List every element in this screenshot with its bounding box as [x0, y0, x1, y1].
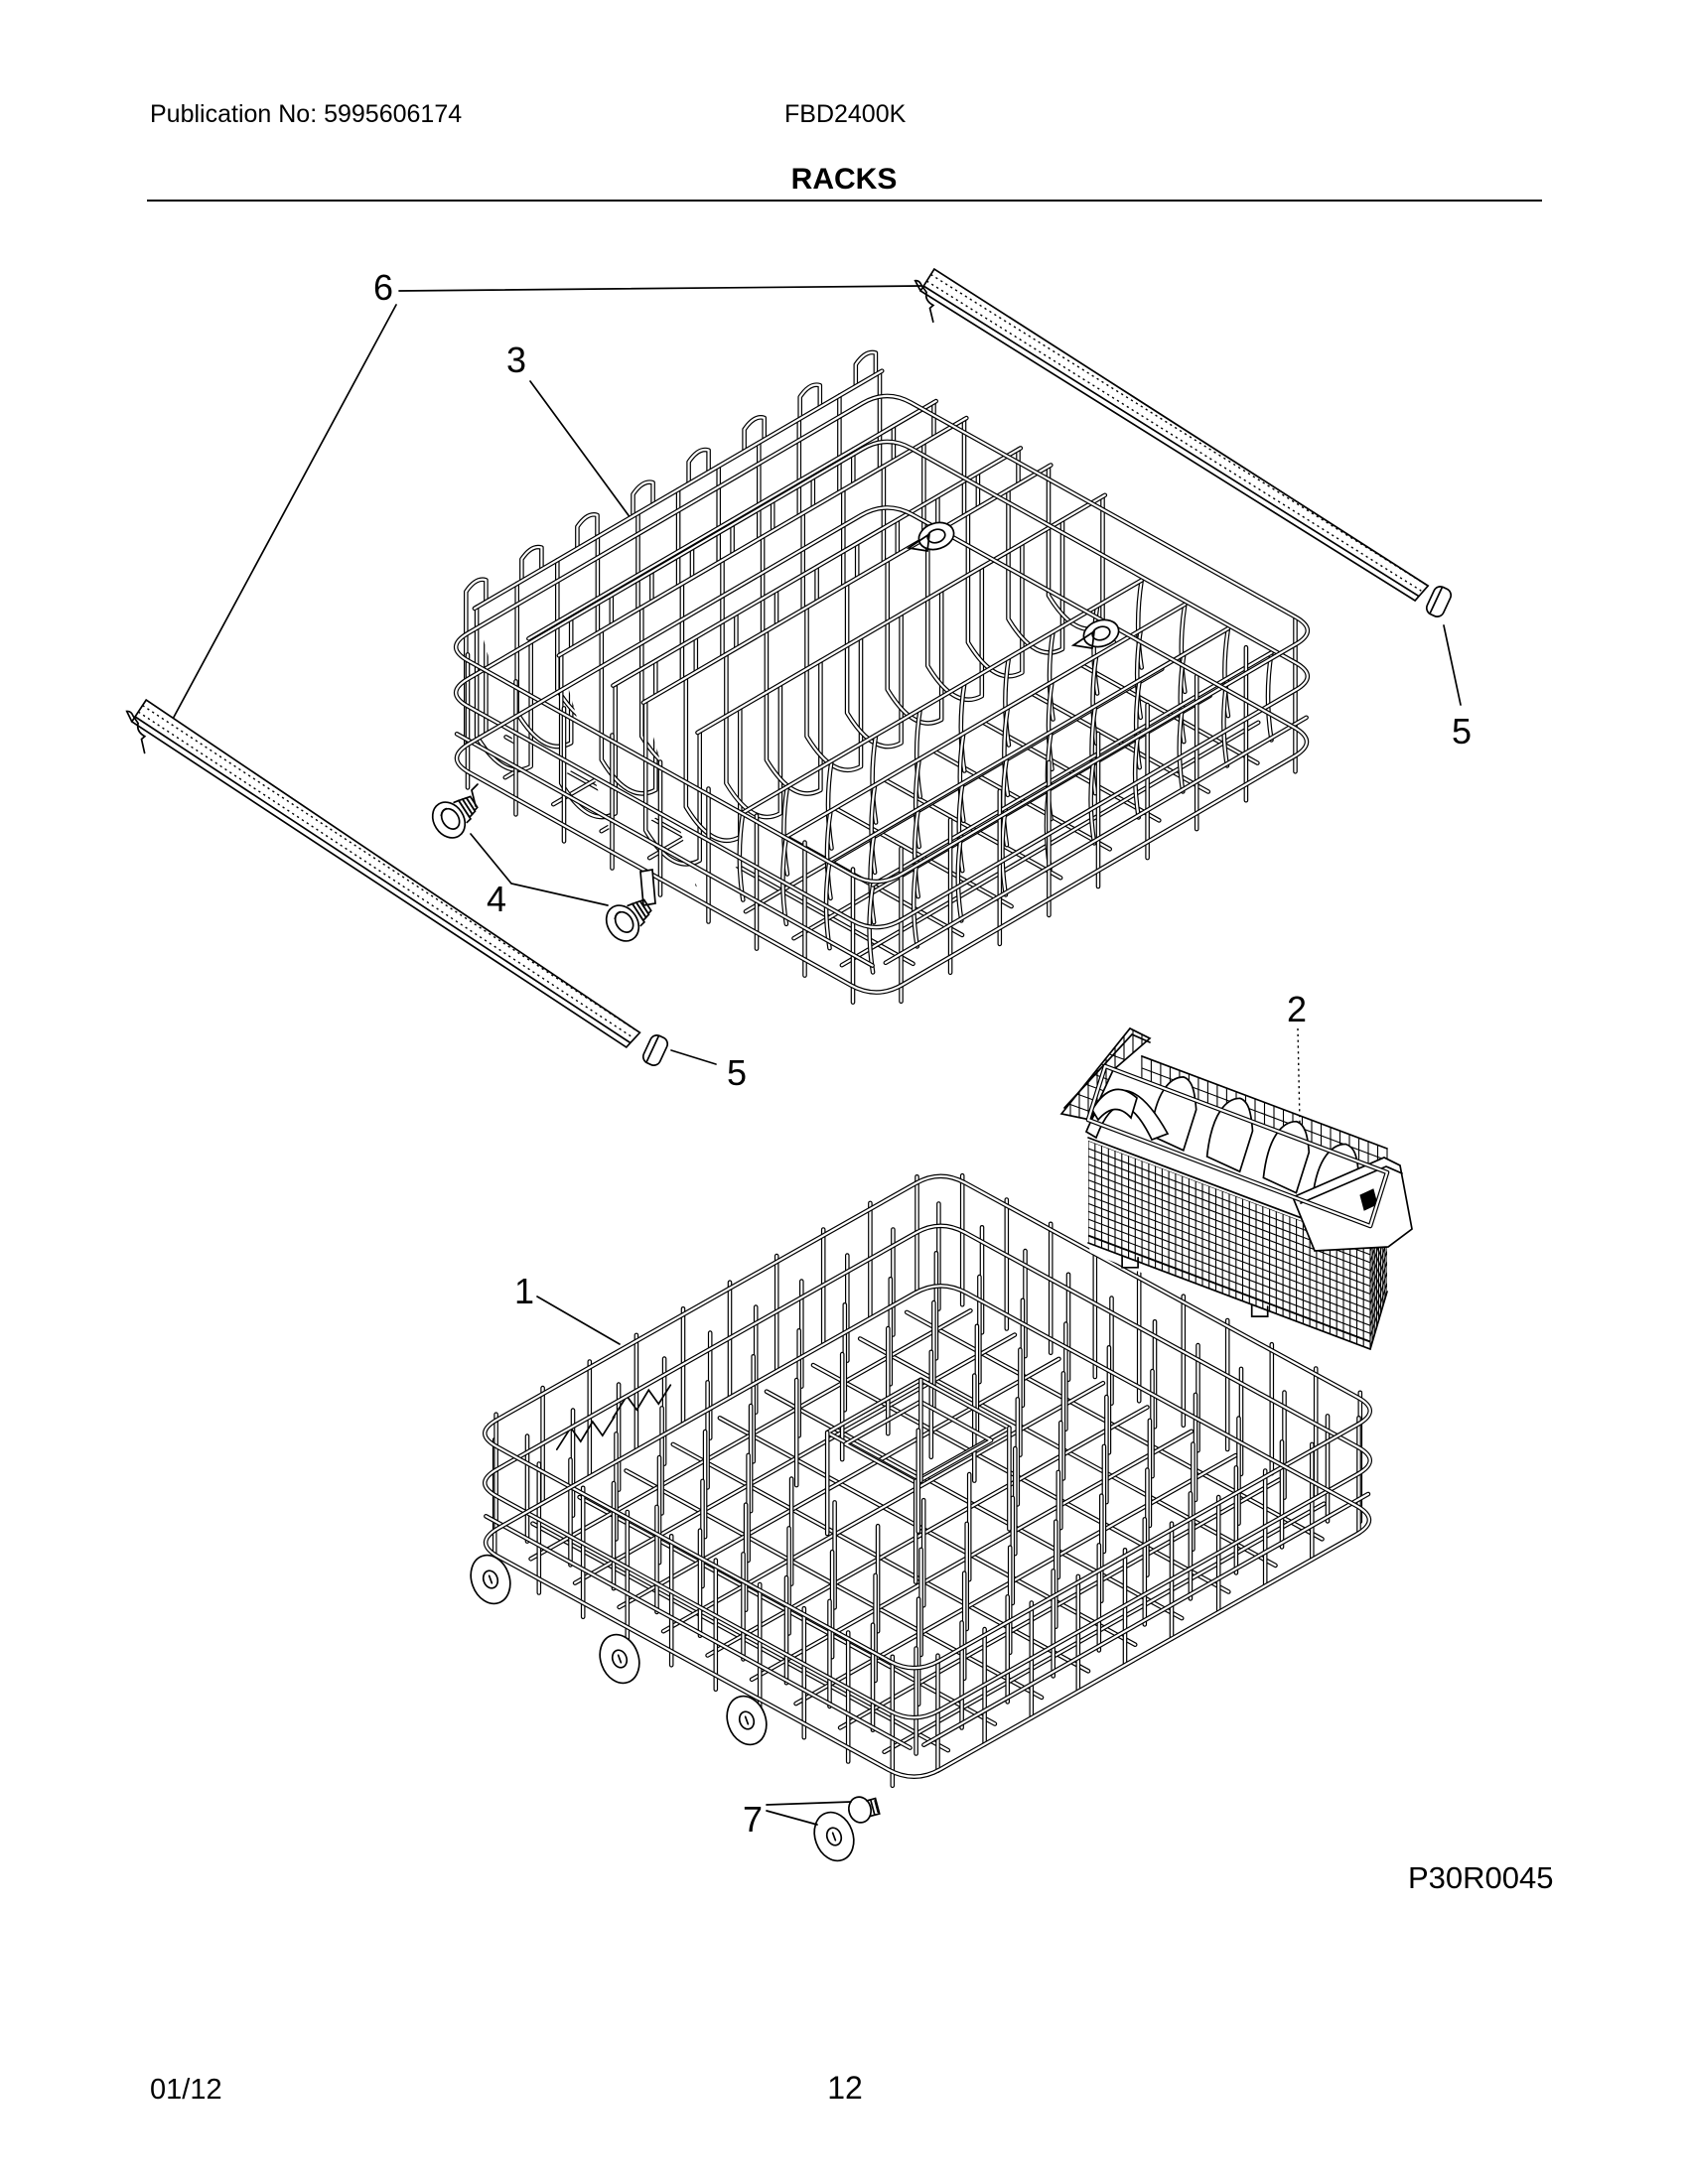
svg-text:6: 6: [373, 267, 393, 308]
svg-text:01/12: 01/12: [150, 2074, 222, 2106]
svg-text:4: 4: [487, 879, 506, 919]
svg-text:7: 7: [743, 1799, 763, 1840]
svg-text:2: 2: [1287, 989, 1307, 1029]
svg-text:FBD2400K: FBD2400K: [784, 100, 907, 128]
svg-text:P30R0045: P30R0045: [1408, 1860, 1554, 1895]
svg-text:1: 1: [514, 1271, 534, 1311]
svg-text:Publication No: 5995606174: Publication No: 5995606174: [150, 100, 462, 128]
svg-text:5: 5: [727, 1052, 747, 1093]
svg-text:5: 5: [1452, 711, 1472, 751]
svg-text:12: 12: [827, 2070, 863, 2106]
svg-text:3: 3: [506, 340, 526, 380]
svg-text:RACKS: RACKS: [791, 163, 898, 196]
